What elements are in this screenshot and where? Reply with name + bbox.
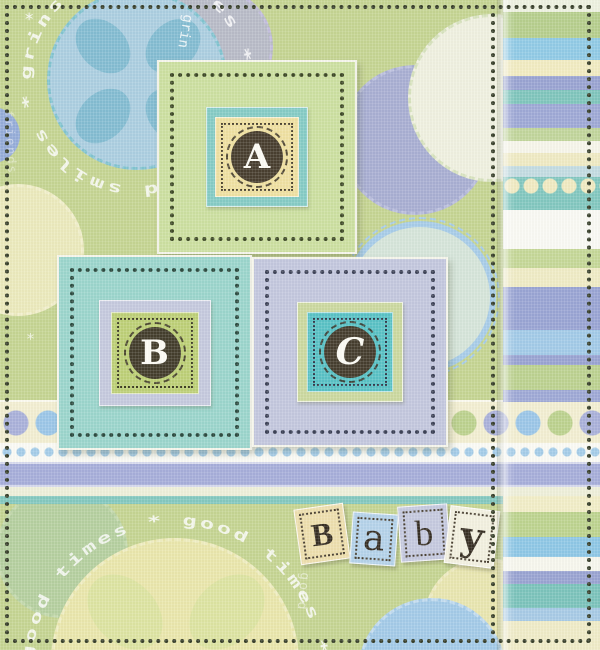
baby-album-cover: grins and smiles * grins and smiles * go… bbox=[0, 0, 600, 650]
outer-stitch-border bbox=[5, 5, 591, 643]
